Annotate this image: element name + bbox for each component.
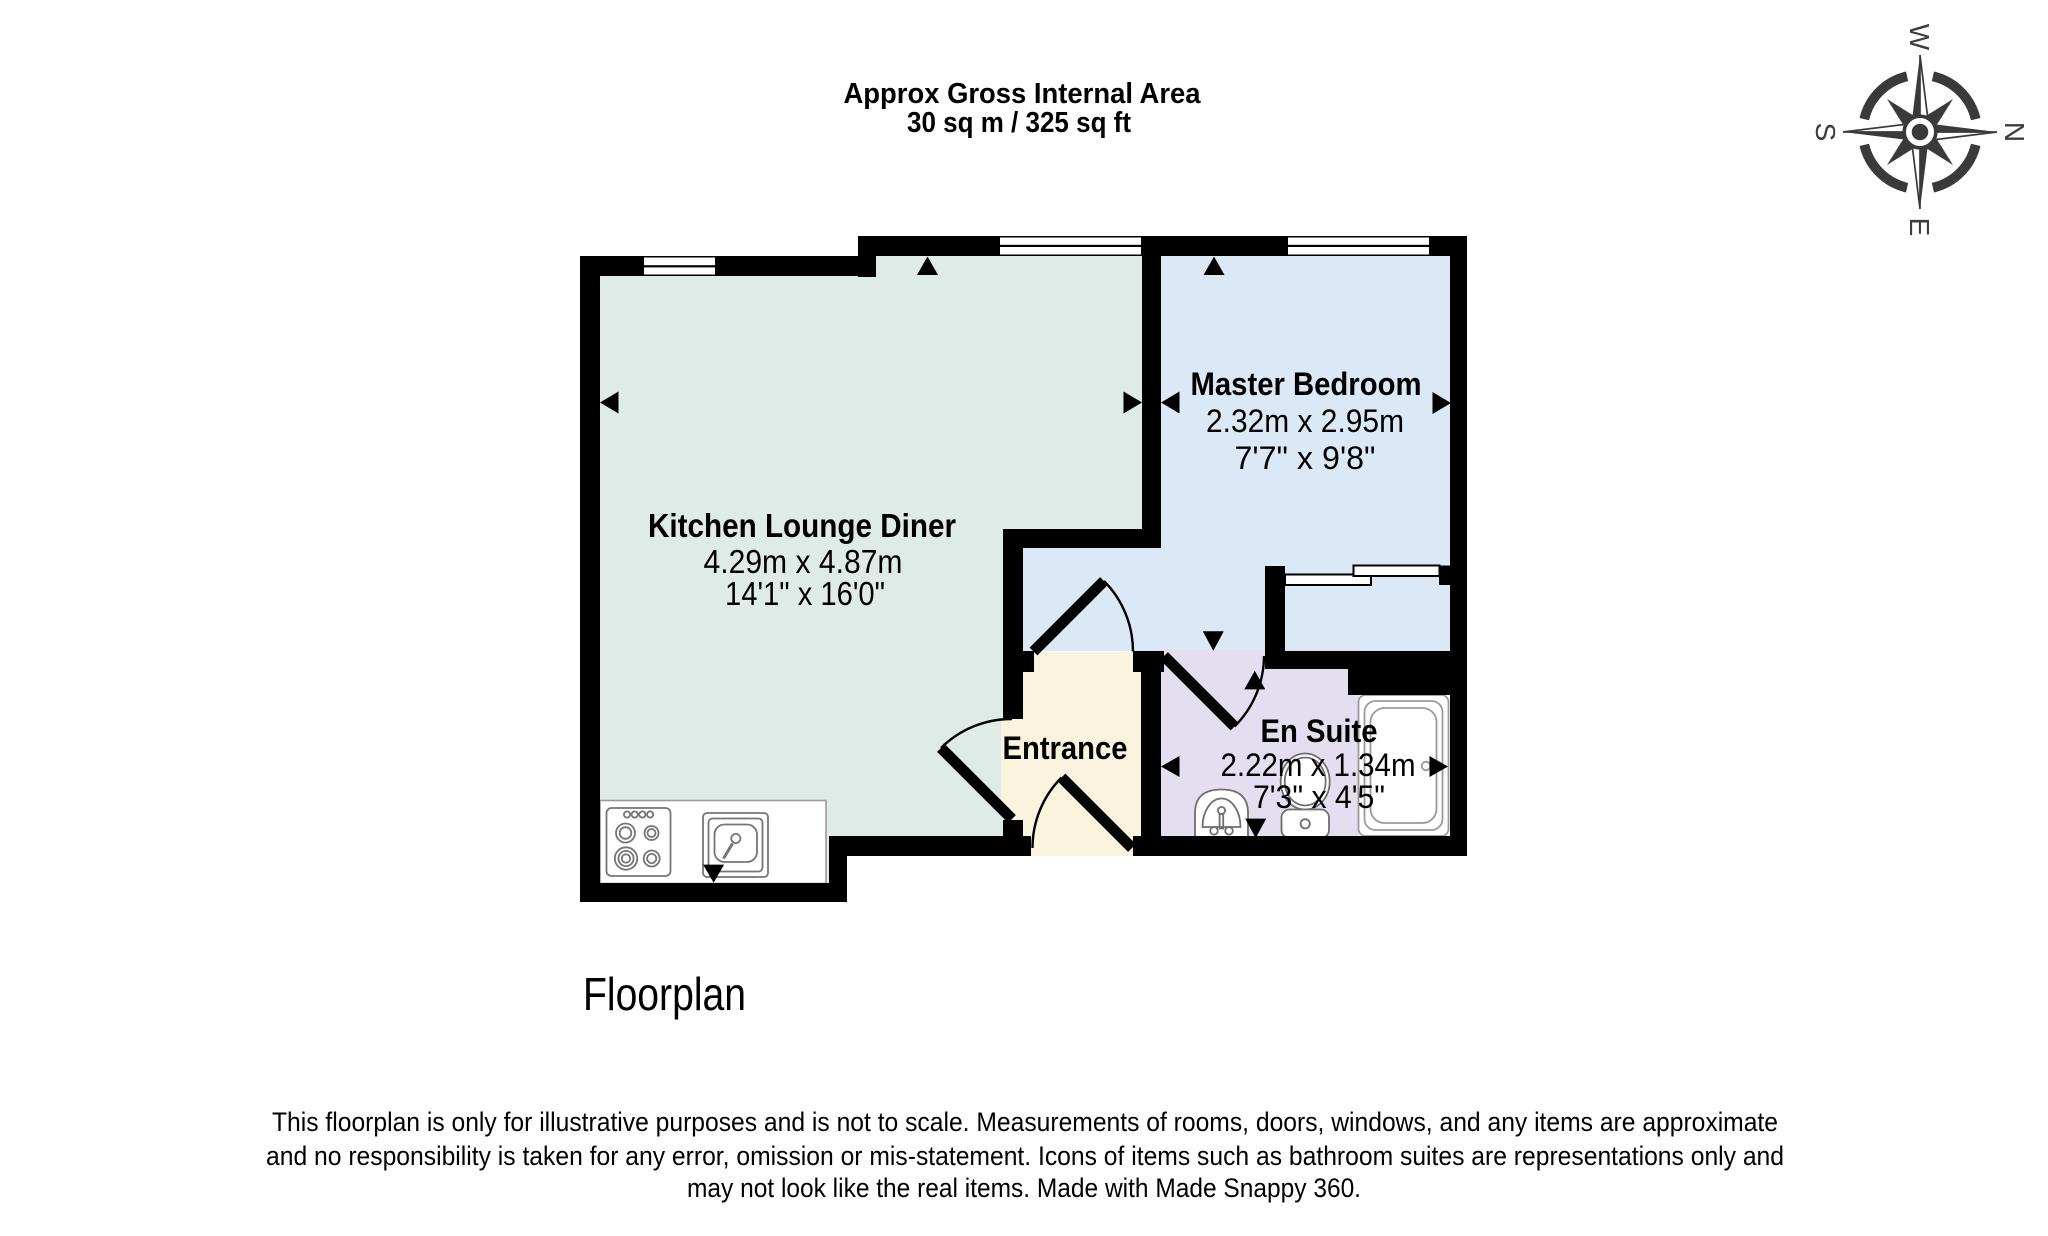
svg-text:E: E xyxy=(1904,218,1935,237)
svg-text:may not look like the real ite: may not look like the real items. Made w… xyxy=(687,1173,1361,1203)
svg-text:This floorplan is only for ill: This floorplan is only for illustrative … xyxy=(272,1107,1778,1137)
svg-text:Floorplan: Floorplan xyxy=(583,968,746,1020)
svg-text:7'7" x 9'8": 7'7" x 9'8" xyxy=(1235,440,1376,476)
svg-text:Kitchen Lounge Diner: Kitchen Lounge Diner xyxy=(648,507,956,544)
svg-text:En Suite: En Suite xyxy=(1261,713,1378,749)
svg-text:Entrance: Entrance xyxy=(1003,730,1128,766)
svg-text:30 sq m / 325 sq ft: 30 sq m / 325 sq ft xyxy=(907,107,1131,139)
svg-text:14'1" x 16'0": 14'1" x 16'0" xyxy=(725,575,885,612)
svg-text:W: W xyxy=(1904,24,1935,51)
svg-text:7'3" x 4'5": 7'3" x 4'5" xyxy=(1253,779,1385,815)
svg-text:Master Bedroom: Master Bedroom xyxy=(1191,366,1422,402)
svg-text:and no responsibility is taken: and no responsibility is taken for any e… xyxy=(266,1141,1784,1171)
svg-text:2.32m x 2.95m: 2.32m x 2.95m xyxy=(1206,403,1404,439)
svg-text:Approx Gross Internal Area: Approx Gross Internal Area xyxy=(844,78,1202,110)
svg-text:S: S xyxy=(1810,123,1841,142)
svg-text:2.22m x 1.34m: 2.22m x 1.34m xyxy=(1221,747,1416,783)
svg-text:N: N xyxy=(1999,122,2030,142)
